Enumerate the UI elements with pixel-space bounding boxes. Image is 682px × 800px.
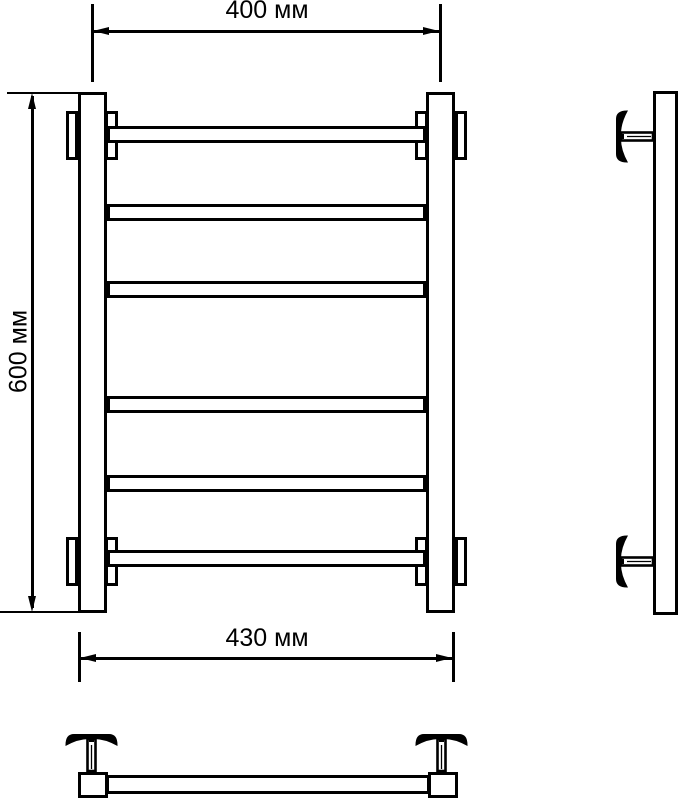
left-dimension-label: 600 мм — [7, 302, 32, 402]
rail-rung-5 — [107, 475, 426, 492]
rail-rung-2 — [107, 204, 426, 221]
dimension-line — [81, 657, 452, 660]
dimension-extension-line — [439, 4, 442, 82]
wall-bracket-side-bottom — [615, 535, 654, 588]
front-right-post — [426, 92, 455, 613]
bottom-dimension-label: 430 мм — [167, 626, 367, 651]
rail-rung-6 — [107, 550, 426, 567]
wall-plate-bottom-left — [66, 537, 78, 586]
side-profile-bar — [653, 91, 678, 615]
rail-rung-4 — [107, 396, 426, 413]
wall-plate-bottom-right — [455, 537, 467, 586]
wall-plate-top-left — [66, 111, 78, 160]
arrowhead-down-icon — [28, 596, 36, 612]
wall-bracket-icon — [615, 110, 654, 163]
plan-post-block-right — [428, 772, 458, 798]
wall-bracket-icon — [615, 535, 654, 588]
wall-bracket-plan-right — [415, 733, 468, 772]
rail-rung-3 — [107, 281, 426, 298]
top-dimension-label: 400 мм — [167, 0, 367, 23]
wall-plate-top-right — [455, 111, 467, 160]
arrowhead-right-icon — [423, 27, 439, 35]
dimension-extension-line — [452, 632, 455, 682]
wall-bracket-icon — [65, 733, 118, 772]
technical-drawing-canvas: 400 мм 600 мм — [0, 0, 682, 800]
arrowhead-right-icon — [436, 654, 452, 662]
arrowhead-left-icon — [93, 27, 109, 35]
front-left-post — [78, 92, 107, 613]
dimension-extension-line — [91, 4, 94, 82]
wall-bracket-plan-left — [65, 733, 118, 772]
wall-bracket-icon — [415, 733, 468, 772]
dimension-line — [31, 96, 34, 608]
plan-post-block-left — [78, 772, 108, 798]
arrowhead-left-icon — [80, 654, 96, 662]
wall-bracket-side-top — [615, 110, 654, 163]
rail-rung-1 — [107, 126, 426, 143]
dimension-line — [94, 30, 439, 33]
arrowhead-up-icon — [28, 93, 36, 109]
plan-cross-bar — [106, 775, 430, 794]
